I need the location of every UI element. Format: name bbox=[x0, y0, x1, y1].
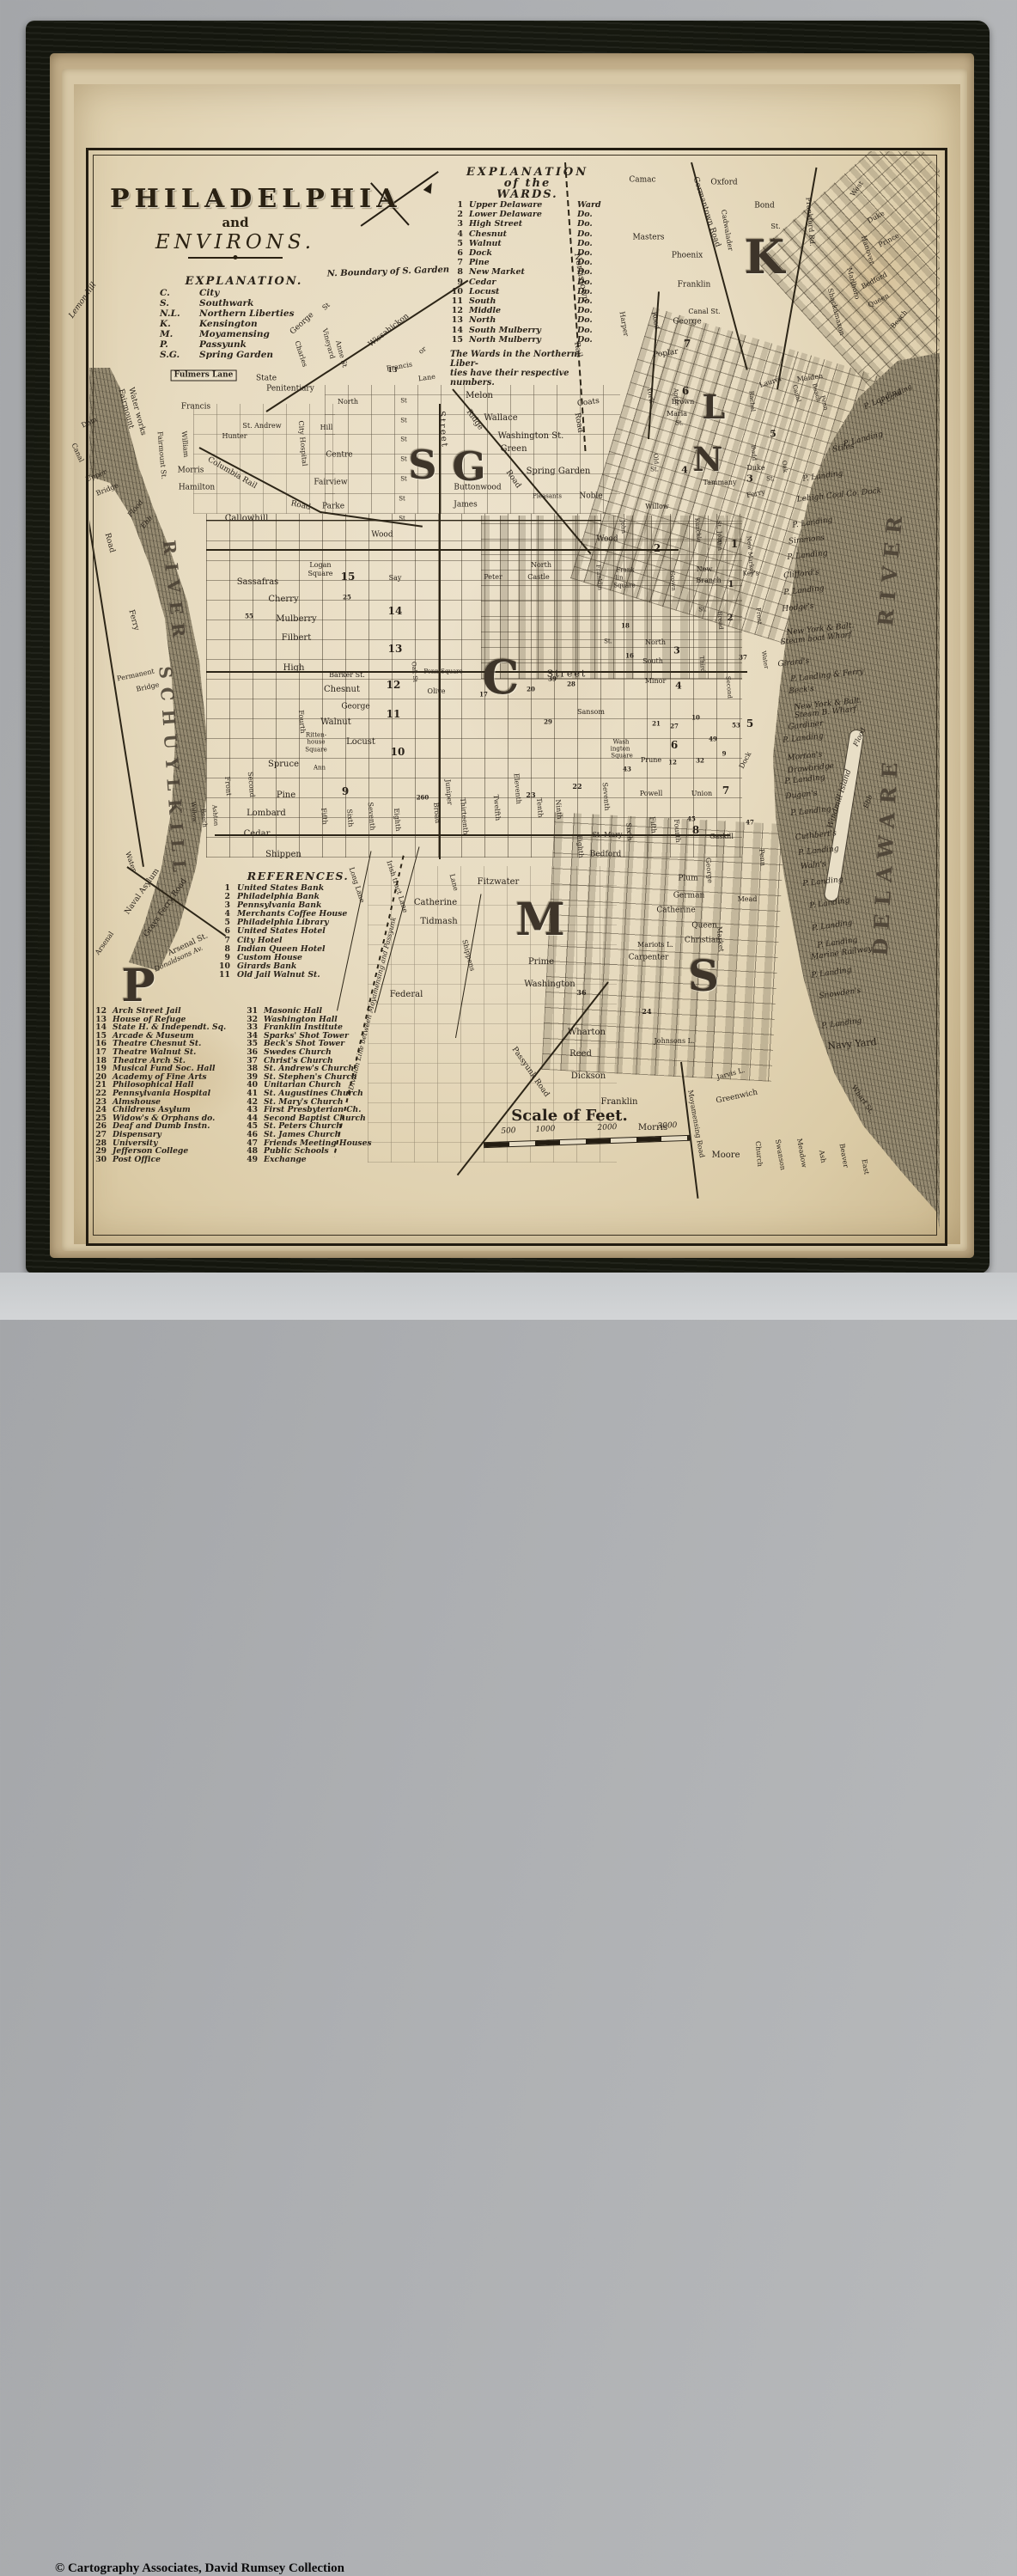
map-label: 20 bbox=[527, 687, 535, 693]
map-label: Melon bbox=[466, 392, 493, 400]
map-label: Harper bbox=[618, 311, 630, 337]
map-label: RIVER bbox=[161, 540, 189, 647]
ward-number: 5 bbox=[450, 239, 463, 248]
ward-number: 6 bbox=[450, 248, 463, 258]
ward-name: Upper Delaware bbox=[469, 200, 577, 210]
explanation-row: C. City bbox=[160, 288, 328, 298]
ward-suffix: Ward bbox=[577, 200, 605, 210]
map-label: St bbox=[400, 399, 407, 405]
map-label: Square bbox=[308, 571, 332, 577]
map-label: Francis bbox=[181, 404, 210, 412]
map-label: Water bbox=[760, 650, 770, 669]
map-label: Gardiner bbox=[788, 720, 824, 731]
map-label: Square bbox=[305, 748, 326, 754]
map-label: DELAWARE bbox=[870, 754, 901, 957]
map-label: Franklin bbox=[600, 1098, 637, 1107]
map-label: Church bbox=[754, 1141, 764, 1167]
map-label: South bbox=[642, 658, 663, 665]
map-label: 4 bbox=[681, 466, 688, 475]
wards-note-line: ties have their respective numbers. bbox=[450, 369, 605, 388]
map-label: Tammany bbox=[703, 479, 736, 486]
map-label: Broad bbox=[432, 802, 441, 823]
map-label: Dickson bbox=[571, 1072, 606, 1081]
map-label: Mead bbox=[738, 896, 758, 903]
map-label: 15 bbox=[341, 571, 356, 582]
district-abbr: M. bbox=[160, 329, 199, 339]
ward-suffix: Do. bbox=[577, 210, 605, 219]
map-label: 22 bbox=[572, 783, 582, 790]
map-label: Eleventh bbox=[512, 773, 521, 804]
map-label: Duke bbox=[746, 465, 764, 472]
map-label: St bbox=[400, 418, 407, 424]
map-label: Shippens bbox=[460, 939, 475, 972]
ward-row: 2 Lower Delaware Do. bbox=[450, 210, 605, 219]
map-label: Square bbox=[611, 754, 632, 760]
map-label: Ebb bbox=[140, 515, 154, 529]
reference-row: 49 Exchange bbox=[241, 1156, 409, 1164]
ward-number: 13 bbox=[450, 315, 463, 325]
map-label: P bbox=[121, 964, 155, 1009]
map-label: Waln's bbox=[801, 861, 826, 871]
map-label: Third bbox=[698, 656, 706, 673]
ward-number: 7 bbox=[450, 258, 463, 267]
map-label: 13 bbox=[388, 644, 403, 654]
map-label: Second bbox=[247, 772, 256, 797]
map-label: 45 bbox=[687, 816, 696, 822]
map-label: Road bbox=[650, 311, 660, 330]
map-label: 47 bbox=[746, 820, 754, 826]
district-name: Southwark bbox=[199, 298, 253, 308]
map-label: Frankford Rd. bbox=[805, 197, 816, 247]
references-col3: 31 Masonic Hall 32 Washington Hall 33 Fr… bbox=[241, 1007, 409, 1163]
map-label: Hamilton bbox=[179, 485, 215, 492]
map-label: St bbox=[400, 477, 407, 483]
map-label: George bbox=[341, 704, 369, 711]
map-label: Eighth bbox=[393, 808, 401, 832]
map-label: Lehigh Coal Co. Dock bbox=[796, 487, 881, 504]
map-label: Square bbox=[613, 583, 635, 589]
map-label: Bedford bbox=[590, 852, 622, 859]
map-label: 13 bbox=[387, 366, 397, 373]
map-label: Beech bbox=[200, 809, 208, 827]
ward-name: Chesnut bbox=[469, 229, 577, 239]
map-label: Willow bbox=[189, 802, 197, 823]
map-label: Phoenix bbox=[672, 253, 703, 260]
map-label: Clifford's bbox=[783, 569, 819, 580]
map-label: 7 bbox=[684, 339, 691, 349]
map-label: Bridge bbox=[95, 482, 119, 497]
map-label: 24 bbox=[642, 1008, 651, 1015]
map-label: Crown bbox=[668, 571, 676, 591]
district-name: Moyamensing bbox=[199, 329, 270, 339]
map-label: Sixth bbox=[345, 809, 354, 827]
map-label: P. Landing bbox=[787, 550, 828, 562]
map-label: 18 bbox=[621, 623, 630, 629]
map-label: Castle bbox=[527, 574, 550, 581]
map-label: 11 bbox=[387, 709, 401, 719]
map-label: George bbox=[673, 319, 701, 327]
ward-suffix: Do. bbox=[577, 239, 605, 248]
explanation-row: M. Moyamensing bbox=[160, 329, 328, 339]
map-label: Powell bbox=[640, 791, 663, 797]
ward-number: 11 bbox=[450, 296, 463, 306]
map-label: Spruce bbox=[268, 760, 299, 769]
map-label: Dock bbox=[739, 751, 753, 770]
book-photo: { "photo": { "copyright": "© Cartography… bbox=[0, 0, 1017, 1320]
map-label: K bbox=[745, 234, 785, 280]
map-label: Camac bbox=[629, 177, 655, 185]
map-label: St bbox=[400, 457, 407, 463]
map-label: Mulberry bbox=[276, 615, 316, 624]
ward-suffix: Do. bbox=[577, 306, 605, 315]
ward-number: 1 bbox=[450, 200, 463, 210]
map-label: Cedar bbox=[244, 830, 271, 839]
map-label: Key's bbox=[743, 571, 759, 577]
map-label: 6 bbox=[682, 386, 689, 396]
map-label: Carpenter bbox=[629, 955, 669, 962]
map-label: Coats bbox=[577, 398, 600, 409]
references-heading: REFERENCES. bbox=[216, 870, 368, 882]
map-label: Eighth bbox=[575, 834, 584, 858]
wards-heading-line: WARDS. bbox=[450, 189, 605, 200]
map-label: Christian bbox=[685, 937, 721, 945]
map-label: 49 bbox=[709, 736, 717, 742]
reference-number: 11 bbox=[216, 971, 230, 980]
map-label: Hill bbox=[320, 424, 333, 431]
map-label: Anne St bbox=[334, 339, 348, 368]
references-panel: REFERENCES. 1 United States Bank 2 Phila… bbox=[216, 870, 368, 980]
map-label: Juniper bbox=[444, 779, 454, 805]
map-label: Wood bbox=[596, 536, 618, 544]
map-label: 500 bbox=[501, 1127, 516, 1136]
map-title: PHILADELPHIA bbox=[110, 184, 361, 214]
map-label: Wallace bbox=[484, 414, 517, 423]
map-label: or bbox=[417, 345, 428, 356]
map-label: 53 bbox=[732, 723, 740, 729]
ward-row: 13 North Do. bbox=[450, 315, 605, 325]
map-label: Penn Square bbox=[423, 669, 462, 675]
map-label: James bbox=[454, 502, 477, 510]
map-label: Hanover bbox=[860, 235, 875, 266]
map-label: P. Landing bbox=[798, 845, 839, 858]
map-label: S bbox=[408, 445, 436, 485]
map-label: L bbox=[703, 391, 726, 424]
map-label: Catherine bbox=[656, 907, 695, 915]
map-label: Prune bbox=[641, 757, 661, 764]
map-label: Lombard bbox=[247, 809, 286, 818]
map-label: S bbox=[688, 955, 719, 998]
map-label: 12 bbox=[387, 680, 401, 690]
map-label: Front bbox=[755, 607, 763, 625]
map-label: Cherry bbox=[268, 595, 298, 604]
ward-name: Dock bbox=[469, 248, 577, 258]
map-label: Budd bbox=[750, 444, 758, 461]
map-label: Maria bbox=[667, 411, 687, 418]
map-label: Queen bbox=[691, 923, 717, 931]
map-label: Masters bbox=[632, 235, 664, 242]
map-label: 2000 bbox=[597, 1124, 617, 1132]
map-label: Sansom bbox=[577, 709, 605, 716]
map-label: Wash bbox=[613, 740, 630, 746]
map-label: 32 bbox=[696, 758, 704, 764]
map-label: Oxford bbox=[710, 180, 737, 187]
map-label: Wharf St. bbox=[850, 1084, 875, 1115]
map-label: Meadow bbox=[795, 1138, 807, 1168]
map-label: 9 bbox=[342, 786, 349, 797]
ward-name: High Street bbox=[469, 219, 577, 229]
ward-number: 12 bbox=[450, 306, 463, 315]
map-label: 37 bbox=[739, 655, 747, 661]
map-label: Fairmount St. bbox=[156, 431, 167, 479]
ward-row: 4 Chesnut Do. bbox=[450, 229, 605, 239]
map-label: German bbox=[673, 893, 705, 900]
map-label: Dam bbox=[81, 416, 98, 429]
map-label: Barker St. bbox=[329, 672, 365, 679]
map-label: 14 bbox=[388, 606, 403, 616]
map-label: Fairview bbox=[314, 479, 347, 487]
map-label: Noble bbox=[579, 493, 602, 501]
ward-row: 1 Upper Delaware Ward bbox=[450, 200, 605, 210]
map-label: 21 bbox=[652, 721, 661, 727]
map-label: Wood bbox=[371, 532, 393, 540]
map-label: Catherine bbox=[414, 899, 457, 907]
map-label: Ninth bbox=[554, 799, 563, 820]
ward-number: 10 bbox=[450, 287, 463, 296]
map-label: St bbox=[399, 497, 405, 503]
map-label: Branch bbox=[696, 577, 721, 584]
explanation-heading: EXPLANATION. bbox=[160, 275, 328, 288]
map-label: 9 bbox=[722, 751, 727, 757]
map-label: 10 bbox=[691, 715, 700, 721]
map-label: St. bbox=[675, 421, 684, 427]
ward-name: North Mulberry bbox=[469, 335, 577, 345]
map-title-and: and bbox=[110, 215, 361, 230]
map-label: Beach bbox=[890, 309, 909, 330]
map-label: Bread bbox=[716, 611, 724, 630]
ward-row: 12 Middle Do. bbox=[450, 306, 605, 315]
ward-number: 3 bbox=[450, 219, 463, 229]
map-label: Spring Garden bbox=[527, 467, 591, 476]
map-label: Johnsons L. bbox=[655, 1038, 695, 1045]
map-label: Franklin bbox=[678, 282, 711, 290]
ward-suffix: Do. bbox=[577, 229, 605, 239]
map-label: P. Landing bbox=[783, 733, 824, 745]
map-label: Oak St bbox=[410, 662, 417, 683]
map-label: P. Landing bbox=[802, 470, 843, 483]
map-label: Fulmers Lane bbox=[171, 370, 237, 382]
map-label: St. bbox=[604, 639, 612, 645]
ward-row: 15 North Mulberry Do. bbox=[450, 335, 605, 345]
photo-caption-strip: © Cartography Associates, David Rumsey C… bbox=[0, 1273, 1017, 1320]
map-label: Walnut bbox=[320, 718, 350, 727]
district-abbr: C. bbox=[160, 288, 199, 298]
map-label: Simmons bbox=[789, 534, 825, 546]
map-label: Canal bbox=[791, 384, 801, 403]
map-label: Sassafras bbox=[237, 578, 279, 587]
map-label: 2 bbox=[654, 543, 661, 553]
map-label: Prime bbox=[528, 958, 554, 967]
map-label: Scale of Feet. bbox=[511, 1108, 627, 1124]
map-label: 12 bbox=[668, 760, 677, 766]
map-label: Market bbox=[716, 926, 725, 952]
ward-name: New Market bbox=[469, 267, 577, 277]
map-label: Plum bbox=[678, 876, 697, 883]
map-label: Penitentiary bbox=[266, 386, 314, 394]
map-label: Reed bbox=[569, 1050, 592, 1059]
map-label: North bbox=[531, 562, 551, 569]
map-label: Jarvis L. bbox=[716, 1067, 746, 1081]
ward-name: Middle bbox=[469, 306, 577, 315]
map-label: Pine bbox=[277, 791, 295, 800]
ward-number: 14 bbox=[450, 326, 463, 335]
map-label: RIVER bbox=[875, 507, 906, 627]
map-label: Road bbox=[504, 469, 522, 490]
district-name: Spring Garden bbox=[199, 350, 273, 360]
map-label: C bbox=[483, 654, 520, 700]
map-label: 6 bbox=[671, 740, 678, 750]
map-label: City Hospital bbox=[297, 420, 308, 467]
ward-name: North bbox=[469, 315, 577, 325]
map-label: Olive bbox=[428, 688, 446, 695]
map-label: P. Landing bbox=[811, 967, 852, 980]
map-label: Moyamensing Road bbox=[686, 1090, 705, 1158]
map-label: Bond bbox=[754, 203, 775, 211]
map-label: Dugan's bbox=[785, 791, 818, 802]
map-label: Beaver bbox=[838, 1143, 850, 1168]
ward-suffix: Do. bbox=[577, 326, 605, 335]
map-label: Filbert bbox=[282, 634, 311, 643]
map-label: Old bbox=[652, 453, 659, 464]
map-label: 4 bbox=[675, 681, 682, 691]
map-label: Ebb bbox=[862, 794, 874, 809]
map-label: Poplar bbox=[653, 348, 679, 359]
district-abbr: S.G. bbox=[160, 350, 199, 360]
map-label: Morton's bbox=[787, 751, 823, 762]
map-label: P. Landing bbox=[809, 897, 850, 910]
map-label: 1 bbox=[728, 581, 734, 589]
ward-name: Pine bbox=[469, 258, 577, 267]
map-label: Stiles bbox=[832, 443, 856, 454]
map-label: 5 bbox=[770, 430, 776, 439]
ward-name: South bbox=[469, 296, 577, 306]
map-label: Ferry bbox=[746, 489, 765, 499]
map-label: High bbox=[283, 664, 305, 673]
map-label: Canal St. bbox=[688, 308, 720, 315]
map-label: 3 bbox=[673, 646, 680, 656]
wards-heading: EXPLANATIONof theWARDS. bbox=[450, 167, 605, 200]
map-label: Lane bbox=[448, 873, 460, 891]
map-label: North bbox=[338, 399, 358, 406]
map-label: Fitzwater bbox=[478, 878, 520, 887]
map-label: Marlboro bbox=[845, 267, 861, 301]
map-label: Front bbox=[223, 776, 232, 796]
map-label: Frank bbox=[616, 568, 634, 574]
map-label: Lane bbox=[418, 374, 436, 383]
map-label: Irish tract Lane bbox=[385, 860, 408, 914]
map-label: St bbox=[399, 516, 405, 522]
map-label: West bbox=[850, 180, 865, 198]
reference-name: Post Office bbox=[113, 1156, 161, 1164]
map-label: Locust bbox=[346, 738, 375, 747]
map-label: Shackamaxon bbox=[826, 288, 845, 336]
map-label: Sixth bbox=[624, 822, 633, 841]
map-label: Parke bbox=[322, 504, 344, 511]
map-label: G bbox=[452, 447, 485, 486]
map-label: 8 bbox=[692, 825, 699, 835]
map-label: P. Landing bbox=[790, 806, 831, 818]
map-label: Seventh bbox=[367, 802, 376, 831]
map-label: Windmill Island bbox=[827, 769, 854, 830]
map-label: Upper bbox=[85, 469, 108, 484]
district-name: City bbox=[199, 288, 219, 298]
map-label: Road bbox=[290, 500, 312, 512]
ward-suffix: Do. bbox=[577, 219, 605, 229]
map-label: Navy Yard bbox=[827, 1037, 877, 1051]
map-label: Kunckle bbox=[693, 517, 701, 542]
map-label: N. Boundary of S. Garden bbox=[327, 266, 450, 279]
map-label: Duke bbox=[867, 211, 886, 225]
map-label: Chesnut bbox=[324, 686, 360, 694]
map-label: 28 bbox=[567, 681, 575, 687]
map-label: Peter bbox=[484, 574, 502, 581]
map-label: 23 bbox=[526, 791, 535, 798]
map-label: Ferry bbox=[126, 609, 139, 632]
map-label: Girard's bbox=[777, 658, 810, 669]
map-label: John bbox=[619, 520, 626, 534]
map-label: Cuthbert's bbox=[795, 830, 837, 842]
district-abbr: N.L. bbox=[160, 308, 199, 319]
map-label: Seventh bbox=[601, 782, 611, 811]
map-label: P. Landing bbox=[792, 516, 833, 529]
map-label: St. Andrew bbox=[242, 423, 281, 430]
map-label: 55 bbox=[245, 613, 253, 620]
map-label: Fourth bbox=[673, 819, 681, 843]
map-label: Penn bbox=[758, 849, 766, 867]
map-label: Mariots L. bbox=[637, 942, 673, 949]
map-label: George bbox=[704, 858, 714, 883]
district-name: Northern Liberties bbox=[199, 308, 294, 319]
map-label: 39 bbox=[548, 676, 557, 682]
map-label: 16 bbox=[625, 653, 634, 659]
map-label: 3 bbox=[746, 474, 753, 484]
copyright-text: © Cartography Associates, David Rumsey C… bbox=[55, 2561, 344, 2576]
map-label: Ritten- bbox=[306, 733, 326, 739]
map-label: Road bbox=[103, 533, 116, 554]
map-label: Lemon hill bbox=[68, 282, 98, 320]
map-label: Ashton bbox=[210, 804, 218, 826]
map-label: Shippen bbox=[265, 851, 301, 859]
map-label: Bedford bbox=[861, 272, 888, 290]
reference-name: Exchange bbox=[264, 1156, 307, 1164]
ward-row: 5 Walnut Do. bbox=[450, 239, 605, 248]
map-label: Minor bbox=[645, 678, 667, 685]
map-label: Beck's bbox=[789, 686, 814, 696]
ward-number: 9 bbox=[450, 278, 463, 287]
map-label: Twelfth bbox=[492, 794, 502, 821]
ward-number: 8 bbox=[450, 267, 463, 277]
map-label: Moore bbox=[712, 1151, 740, 1160]
map-label: Drawbridge bbox=[787, 763, 834, 776]
map-label: Penn bbox=[819, 395, 828, 412]
reference-number: 49 bbox=[241, 1156, 258, 1164]
map-label: Rail bbox=[572, 341, 582, 357]
map-text-layer: PHILADELPHIA and ENVIRONS. EXPLANATION. … bbox=[0, 0, 1017, 1320]
district-name: Passyunk bbox=[199, 339, 247, 350]
ward-row: 14 South Mulberry Do. bbox=[450, 326, 605, 335]
map-label: Gaskill bbox=[709, 833, 734, 840]
map-label: Naval Asylum bbox=[124, 868, 161, 917]
map-label: Fifth bbox=[320, 808, 328, 825]
